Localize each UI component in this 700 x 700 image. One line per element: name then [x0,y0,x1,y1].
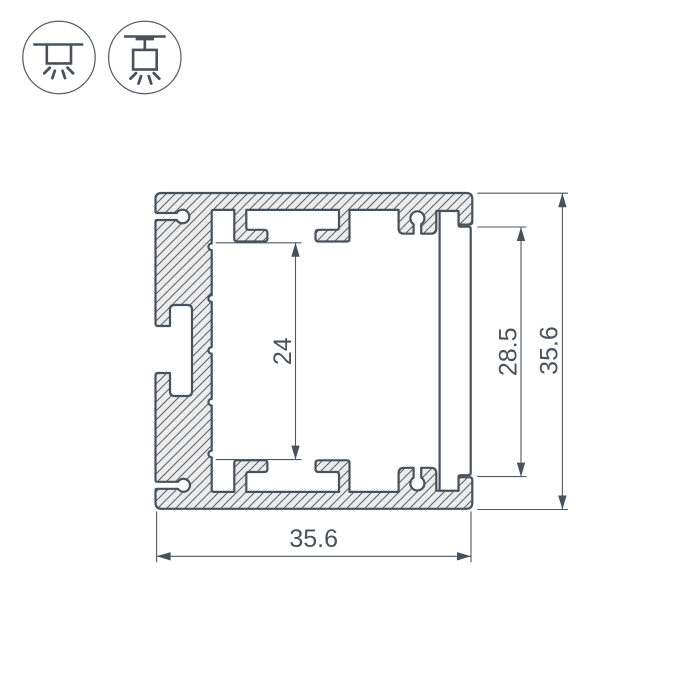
svg-text:35.6: 35.6 [536,326,564,375]
svg-text:24: 24 [269,337,297,365]
svg-text:28.5: 28.5 [495,327,523,376]
svg-text:35.6: 35.6 [289,525,338,553]
